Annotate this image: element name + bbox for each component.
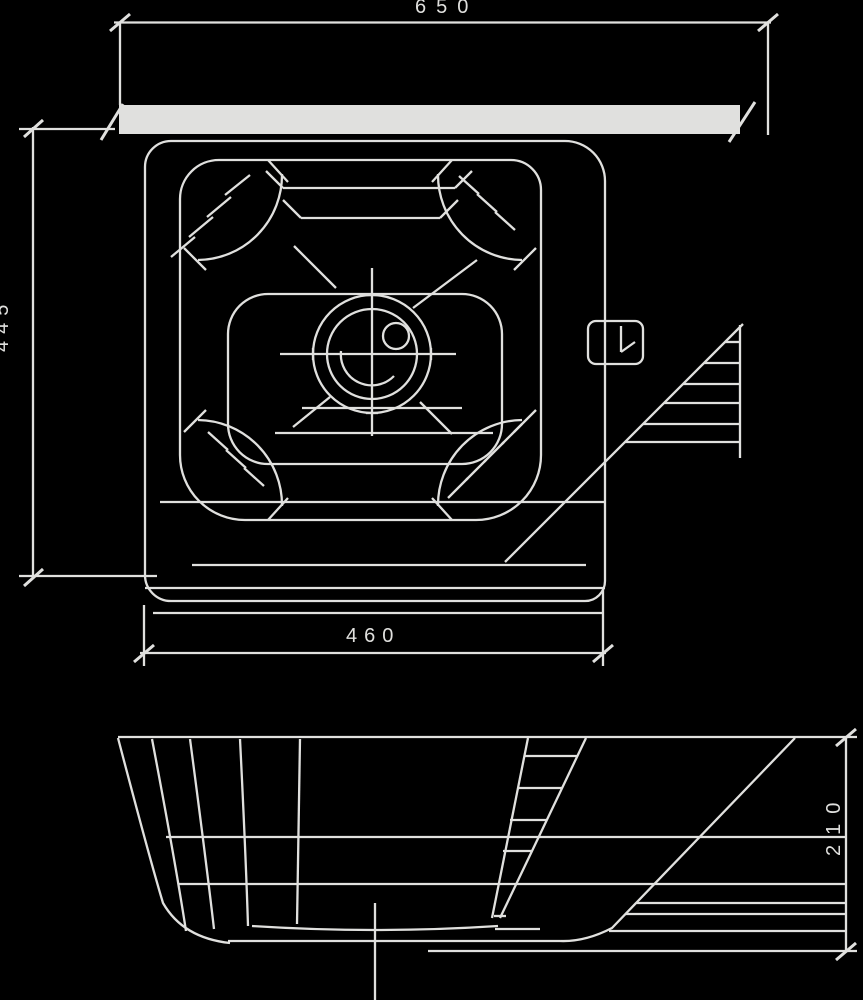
svg-text:650: 650 xyxy=(415,0,478,18)
svg-text:460: 460 xyxy=(346,625,400,647)
svg-text:210: 210 xyxy=(823,793,845,856)
svg-text:445: 445 xyxy=(0,298,13,352)
